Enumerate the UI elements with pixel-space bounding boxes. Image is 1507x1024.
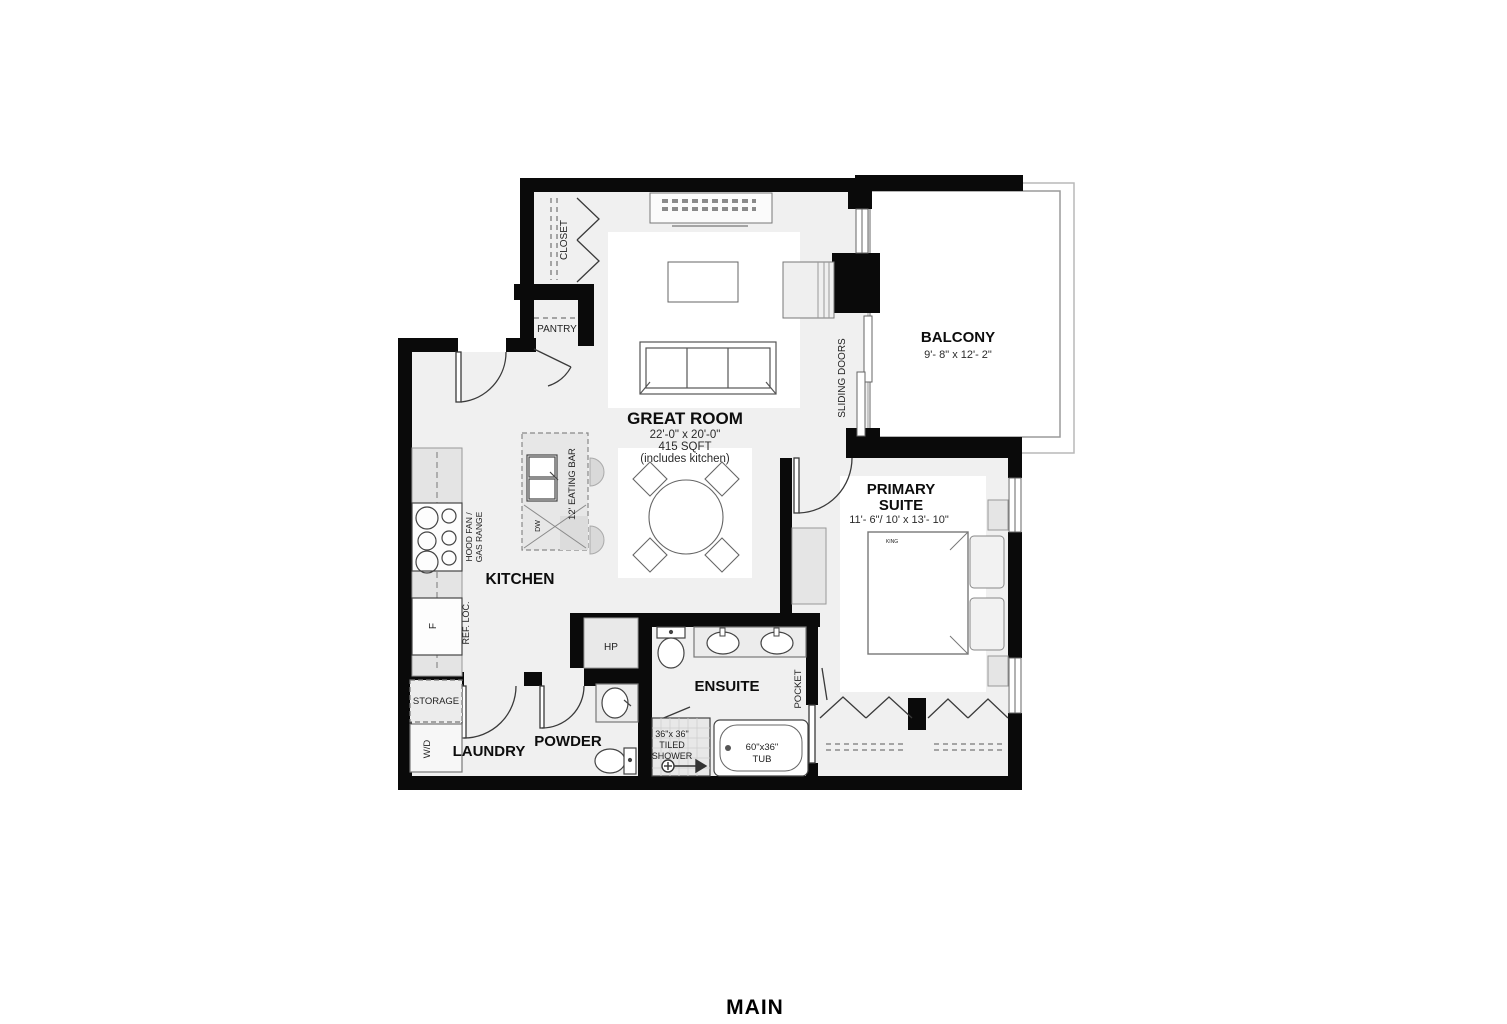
- pocket-door-label: POCKET: [793, 669, 804, 708]
- balcony-deck: [870, 191, 1060, 437]
- great-room-area: 415 SQFT: [658, 441, 711, 453]
- storage-label: STORAGE: [413, 696, 459, 707]
- dishwasher-label: DW: [535, 520, 542, 532]
- media-console: [650, 193, 772, 226]
- pillow: [970, 598, 1004, 650]
- pillow: [970, 536, 1004, 588]
- pantry-label: PANTRY: [537, 324, 577, 335]
- balcony-dimensions: 9'- 8" x 12'- 2": [924, 349, 992, 361]
- fridge-location-label: REF. LOC.: [461, 601, 471, 644]
- gas-range: [412, 503, 462, 573]
- ensuite-vanity: [694, 627, 806, 657]
- balcony-structure: [868, 183, 1074, 453]
- plan-title: MAIN: [726, 996, 784, 1019]
- balcony-label: BALCONY: [921, 329, 995, 346]
- washer-dryer-label: W/D: [422, 740, 433, 759]
- powder-toilet: [595, 748, 636, 774]
- ensuite-toilet: [657, 627, 685, 668]
- hood-fan-label-line2: GAS RANGE: [474, 511, 484, 562]
- great-room-dimensions: 22'-0" x 20'-0": [650, 429, 721, 441]
- shower-label-line2: TILED: [659, 740, 685, 750]
- primary-suite-label-line2: SUITE: [879, 497, 923, 514]
- tub-label: TUB: [753, 754, 772, 765]
- dresser: [792, 528, 826, 604]
- floor-plan: CLOSET PANTRY GREAT ROOM 22'-0" x 20'-0"…: [0, 0, 1507, 1024]
- shower-size-label: 36"x 36": [655, 729, 688, 739]
- floor-plan-page: CLOSET PANTRY GREAT ROOM 22'-0" x 20'-0"…: [0, 0, 1507, 1024]
- shower-label-line3: SHOWER: [652, 751, 693, 761]
- great-room-label: GREAT ROOM: [627, 409, 743, 428]
- powder-sink: [596, 684, 638, 722]
- eating-bar-label: 12' EATING BAR: [567, 448, 578, 520]
- tub-size-label: 60"x36": [746, 742, 779, 753]
- ensuite-label: ENSUITE: [694, 678, 759, 695]
- hood-fan-label-line1: HOOD FAN /: [464, 512, 474, 562]
- island-sink: [527, 455, 558, 501]
- dining-table: [649, 480, 723, 554]
- heat-pump-label: HP: [604, 642, 618, 653]
- shelf-unit: [783, 262, 834, 318]
- great-room-note: (includes kitchen): [640, 453, 730, 465]
- primary-suite-label-line1: PRIMARY: [867, 481, 936, 498]
- sliding-door-panel-2: [857, 372, 865, 436]
- sliding-doors-label: SLIDING DOORS: [837, 338, 848, 418]
- pocket-door: [809, 705, 815, 763]
- tub-faucet: [725, 745, 731, 751]
- coffee-table: [668, 262, 738, 302]
- laundry-label: LAUNDRY: [453, 743, 526, 760]
- closet-label: CLOSET: [559, 220, 570, 260]
- nightstand: [988, 656, 1008, 686]
- powder-label: POWDER: [534, 733, 602, 750]
- fridge-label: F: [428, 623, 439, 629]
- sofa: [640, 342, 776, 394]
- nightstand: [988, 500, 1008, 530]
- kitchen-label: KITCHEN: [486, 571, 555, 588]
- bed-size-label: KING: [886, 539, 898, 545]
- primary-suite-dimensions: 11'- 6"/ 10' x 13'- 10": [849, 514, 949, 526]
